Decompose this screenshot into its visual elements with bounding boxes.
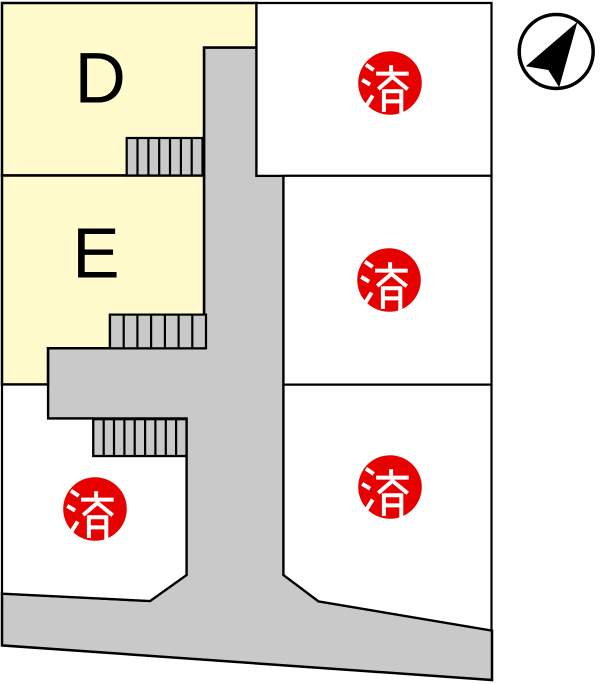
svg-text:E: E [72, 214, 119, 293]
svg-text:D: D [75, 39, 126, 118]
